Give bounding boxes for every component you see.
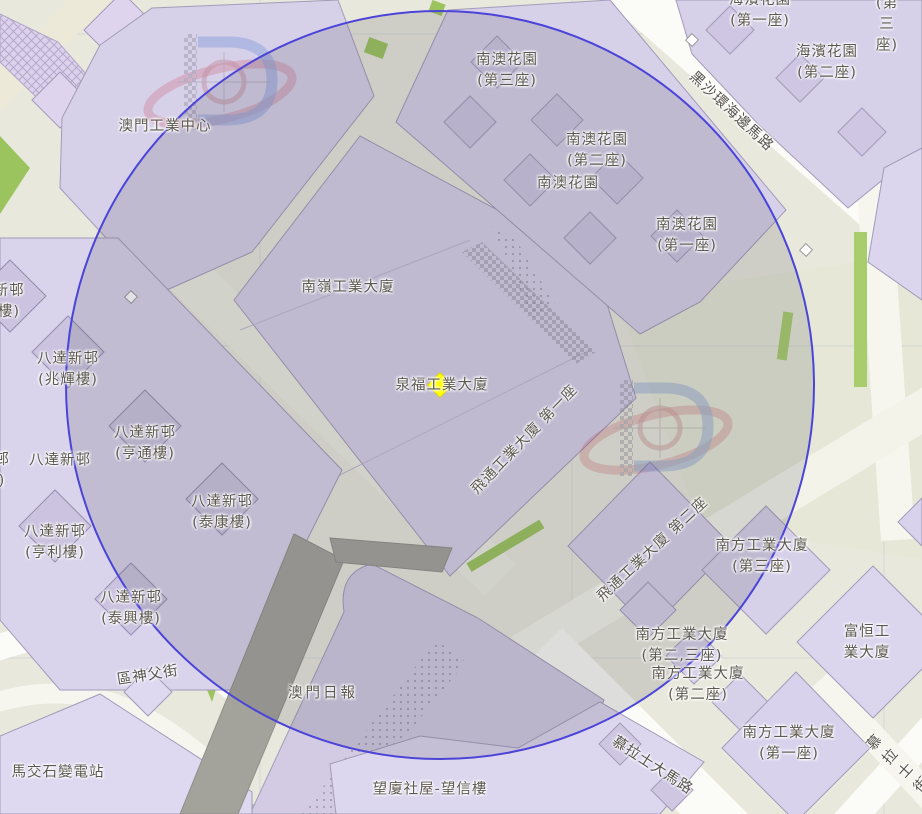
verge-strip [854, 232, 867, 387]
map-base-layer [0, 0, 922, 814]
map-canvas[interactable]: 海濱花園 (第一座) 海濱花園 (第三座) 海濱花園 (第二座) 黑沙環海邊馬路… [0, 0, 922, 814]
